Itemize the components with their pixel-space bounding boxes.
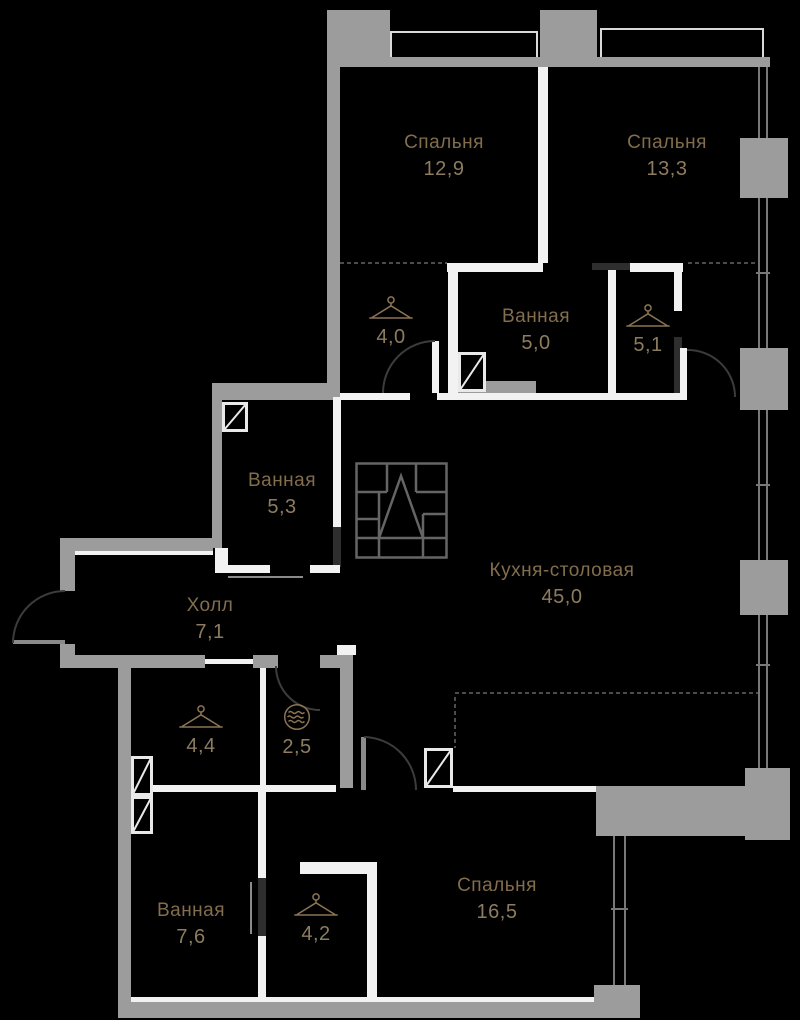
wall [300, 862, 377, 874]
wall [447, 263, 543, 272]
room-area: 13,3 [627, 156, 707, 183]
window-mullion [611, 908, 628, 910]
room-name: Ванная [248, 467, 316, 494]
wall [258, 792, 266, 878]
terrace-outline [390, 31, 538, 33]
window-mullion [756, 664, 770, 666]
wall [260, 668, 266, 785]
terrace-outline [390, 31, 392, 57]
door-leaf [361, 737, 366, 790]
wall [212, 383, 340, 400]
room-label-bathroom-bottom: Ванная 7,6 [157, 897, 225, 951]
wall-pier [740, 348, 788, 410]
window [758, 67, 768, 138]
room-label-bathroom-mid: Ванная 5,3 [248, 467, 316, 521]
door-leaf [432, 341, 439, 393]
wall-dark [258, 878, 266, 936]
room-area: 5,3 [248, 494, 316, 521]
wall [453, 786, 596, 792]
room-area: 7,1 [187, 619, 234, 646]
wall-pier [740, 560, 788, 615]
terrace-outline [536, 31, 538, 57]
room-name: Спальня [627, 129, 707, 156]
wall [60, 538, 75, 591]
wall [437, 393, 687, 400]
wall-column [327, 10, 390, 57]
room-label-closet-right: 5,1 [623, 303, 673, 359]
wall [218, 565, 270, 573]
vent-shaft [458, 352, 486, 392]
wall [608, 270, 616, 393]
room-name: Холл [187, 592, 234, 619]
floor-plan: Спальня 12,9 Спальня 13,3 4,0 Ванная 5,0… [0, 0, 800, 1020]
wall [337, 645, 356, 655]
room-area: 2,5 [282, 734, 312, 761]
wall [367, 862, 377, 1002]
wall [65, 538, 213, 551]
wall [212, 398, 222, 548]
wall [310, 565, 340, 573]
room-label-wardrobe-bottom: 4,2 [291, 892, 341, 948]
wall [118, 655, 205, 668]
door-threshold [592, 263, 630, 270]
wall [340, 655, 353, 788]
terrace-outline [600, 28, 602, 57]
window-mullion [756, 484, 770, 486]
room-area: 4,0 [366, 324, 416, 351]
wall [258, 936, 266, 1002]
room-area: 7,6 [157, 924, 225, 951]
washing-machine-icon [282, 702, 312, 732]
room-area: 45,0 [490, 584, 635, 611]
room-label-bathroom-top: Ванная 5,0 [502, 303, 570, 357]
hanger-icon [176, 704, 226, 731]
geometric-logo [357, 464, 447, 558]
wall [327, 57, 340, 397]
wall-dark [333, 527, 341, 567]
door-sill [205, 659, 253, 664]
room-name: Спальня [404, 129, 484, 156]
room-label-bedroom-2: Спальня 13,3 [627, 129, 707, 183]
room-label-wardrobe-top: 4,0 [366, 295, 416, 351]
room-area: 16,5 [457, 899, 537, 926]
room-area: 5,1 [623, 332, 673, 359]
wall-bedroom-divider [538, 67, 548, 263]
window-mullion [756, 272, 770, 274]
window [758, 615, 768, 768]
terrace-outline [600, 28, 764, 30]
wall [131, 785, 336, 792]
room-name: Ванная [157, 897, 225, 924]
vent-shaft [222, 402, 248, 432]
wall-exterior-bottom [118, 1002, 640, 1018]
room-name: Ванная [502, 303, 570, 330]
room-area: 5,0 [502, 330, 570, 357]
hanger-icon [623, 303, 673, 330]
wall [253, 655, 278, 668]
room-label-hall: Холл 7,1 [187, 592, 234, 646]
room-area: 4,2 [291, 921, 341, 948]
wall [448, 263, 458, 393]
wall-block [596, 786, 746, 836]
room-label-bedroom-1: Спальня 12,9 [404, 129, 484, 183]
room-label-kitchen: Кухня-столовая 45,0 [490, 557, 635, 611]
wall-column [540, 10, 597, 57]
wall [333, 397, 341, 527]
room-label-bedroom-3: Спальня 16,5 [457, 872, 537, 926]
wall [340, 393, 410, 400]
wall [674, 266, 682, 311]
wall [330, 57, 770, 67]
door-leaf [680, 348, 687, 397]
room-area: 12,9 [404, 156, 484, 183]
terrace-outline [762, 28, 764, 57]
vent-shaft [424, 748, 453, 788]
room-area: 4,4 [176, 733, 226, 760]
hanger-icon [291, 892, 341, 919]
wall-pier [740, 138, 788, 198]
room-name: Спальня [457, 872, 537, 899]
wall-block [745, 768, 790, 840]
wall-exterior-left [118, 655, 131, 1012]
entrance-door-leaf [13, 640, 65, 644]
room-label-wardrobe-left: 4,4 [176, 704, 226, 760]
vent-shaft [131, 796, 153, 834]
window [613, 836, 626, 985]
vent-shaft [131, 756, 153, 796]
hanger-icon [366, 295, 416, 322]
room-label-laundry: 2,5 [282, 702, 312, 761]
room-name: Кухня-столовая [490, 557, 635, 584]
wall [65, 551, 213, 555]
